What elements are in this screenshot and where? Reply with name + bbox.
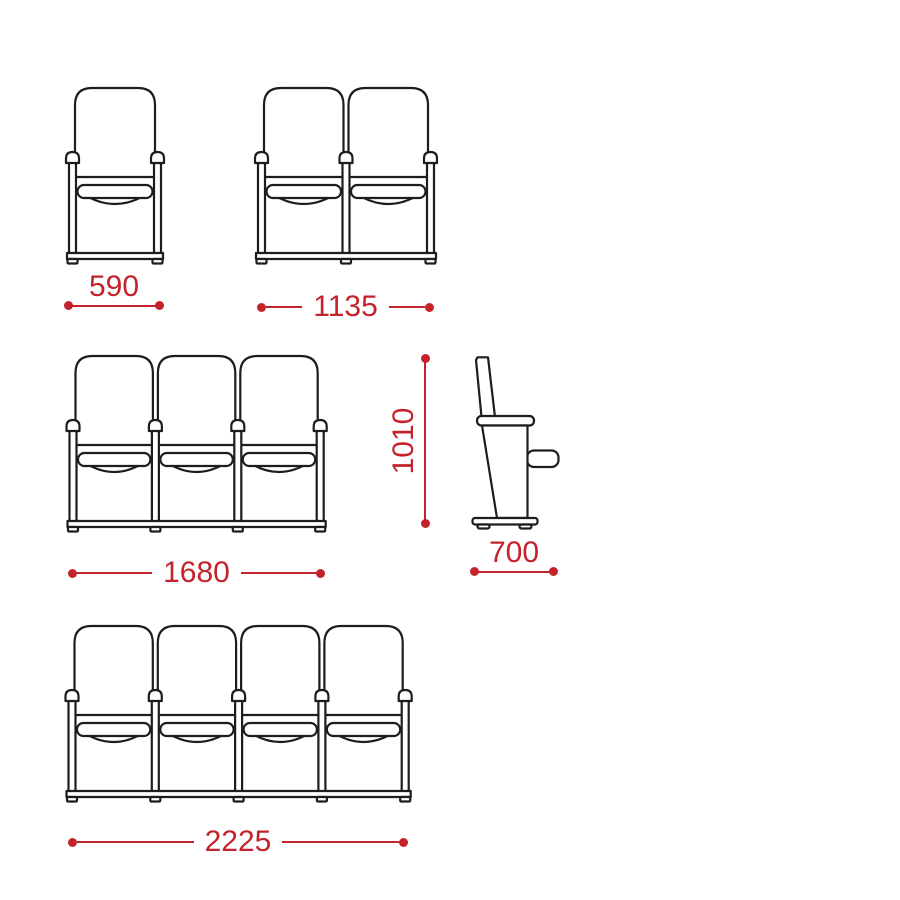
backrest: [240, 356, 317, 445]
dimension-quad-width: 2225: [68, 827, 408, 857]
armrest-post: [154, 161, 161, 258]
dimension-line: [421, 354, 430, 528]
dimension-triple-width-label: 1680: [152, 558, 241, 588]
armrest-post: [343, 161, 350, 258]
dimension-endpoint-dot: [399, 838, 408, 847]
backrest: [264, 88, 344, 177]
armrest-cap: [314, 420, 327, 431]
floor-rail: [68, 521, 326, 527]
folded-seat-cushion: [244, 723, 317, 736]
backrest: [324, 626, 402, 715]
armrest-cap: [67, 420, 80, 431]
armrest-cap: [149, 690, 162, 701]
dimension-seat-depth-label: 700: [470, 538, 558, 568]
floor-rail: [67, 253, 163, 259]
dimension-endpoint-dot: [68, 569, 77, 578]
armrest-cap: [315, 690, 328, 701]
side-foot: [478, 525, 490, 529]
folded-seat-cushion: [77, 723, 150, 736]
foot: [315, 527, 325, 532]
armrest-cap: [151, 152, 164, 163]
backrest: [158, 356, 235, 445]
armrest-cap: [66, 152, 79, 163]
dimension-endpoint-dot: [68, 838, 77, 847]
armrest-post: [152, 429, 159, 526]
foot: [67, 797, 77, 802]
dimension-line: [64, 301, 164, 310]
dimension-line-bar: [266, 306, 302, 308]
armrest-cap: [424, 152, 437, 163]
armrest-post: [402, 699, 409, 796]
armrest-post: [69, 699, 76, 796]
dimension-endpoint-dot: [316, 569, 325, 578]
dimension-row-height-label: 1010: [389, 408, 419, 475]
dimension-row-height: 1010: [383, 354, 467, 528]
armrest-post: [235, 699, 242, 796]
foot: [341, 259, 351, 264]
dimension-seat-depth: 700: [470, 538, 558, 576]
dimension-line-bar: [77, 572, 152, 574]
armrest-cap: [66, 690, 79, 701]
armrest-post: [427, 161, 434, 258]
folded-seat-cushion: [78, 453, 150, 466]
armrest-cap: [255, 152, 268, 163]
foot: [233, 527, 243, 532]
dimension-line: [470, 567, 558, 576]
front-view-4-seat: [66, 626, 412, 802]
folded-seat-cushion: [267, 185, 342, 198]
side-view-seat: [473, 357, 559, 528]
backrest: [75, 626, 153, 715]
dimension-triple-width: 1680: [68, 558, 325, 588]
dimension-line-bar: [474, 571, 554, 573]
armrest-post: [152, 699, 159, 796]
folded-seat-cushion: [327, 723, 400, 736]
armrest-cap: [232, 690, 245, 701]
side-backrest: [476, 357, 495, 417]
folded-seat-cushion: [160, 453, 232, 466]
foot: [68, 259, 78, 264]
foot: [68, 527, 78, 532]
folded-seat-cushion: [160, 723, 233, 736]
side-foot: [520, 525, 532, 529]
armrest-post: [234, 429, 241, 526]
front-view-1-seat: [66, 88, 164, 264]
foot: [153, 259, 163, 264]
foot: [257, 259, 267, 264]
dimension-quad-width-label: 2225: [194, 827, 283, 857]
backrest: [349, 88, 429, 177]
front-view-2-seat: [255, 88, 437, 264]
armrest-post: [317, 429, 324, 526]
side-armrest: [527, 451, 559, 468]
folded-seat-cushion: [78, 185, 153, 198]
foot: [150, 527, 160, 532]
side-seat-body: [482, 426, 528, 519]
side-seat-top-edge: [477, 416, 534, 426]
backrest: [158, 626, 236, 715]
dimension-line-bar: [68, 305, 160, 307]
armrest-cap: [149, 420, 162, 431]
dimension-single-width-label: 590: [64, 272, 164, 302]
foot: [317, 797, 327, 802]
dimension-endpoint-dot: [425, 303, 434, 312]
dimension-endpoint-dot: [257, 303, 266, 312]
dimension-endpoint-dot: [64, 301, 73, 310]
backrest: [241, 626, 319, 715]
armrest-post: [258, 161, 265, 258]
dimension-line-bar: [77, 841, 194, 843]
backrest: [76, 356, 153, 445]
foot: [234, 797, 244, 802]
folded-seat-cushion: [351, 185, 426, 198]
armrest-post: [70, 429, 77, 526]
dimension-line-bar: [241, 572, 316, 574]
dimension-endpoint-dot: [470, 567, 479, 576]
dimension-endpoint-dot: [421, 354, 430, 363]
armrest-cap: [340, 152, 353, 163]
armrest-cap: [399, 690, 412, 701]
foot: [426, 259, 436, 264]
dimension-single-width: 590: [64, 272, 164, 310]
armrest-post: [318, 699, 325, 796]
dimension-endpoint-dot: [549, 567, 558, 576]
dimension-line-bar: [424, 358, 426, 524]
armrest-cap: [231, 420, 244, 431]
armrest-post: [69, 161, 76, 258]
foot: [400, 797, 410, 802]
dimension-endpoint-dot: [155, 301, 164, 310]
foot: [150, 797, 160, 802]
front-view-3-seat: [67, 356, 327, 532]
dimension-double-width: 1135: [257, 292, 434, 322]
drawing-canvas: 590 1135 1680 1010 700 2225: [0, 0, 900, 900]
backrest: [75, 88, 155, 177]
dimension-double-width-label: 1135: [302, 292, 389, 322]
folded-seat-cushion: [243, 453, 315, 466]
dimension-endpoint-dot: [421, 519, 430, 528]
dimension-line-bar: [282, 841, 399, 843]
dimension-line-bar: [389, 306, 425, 308]
